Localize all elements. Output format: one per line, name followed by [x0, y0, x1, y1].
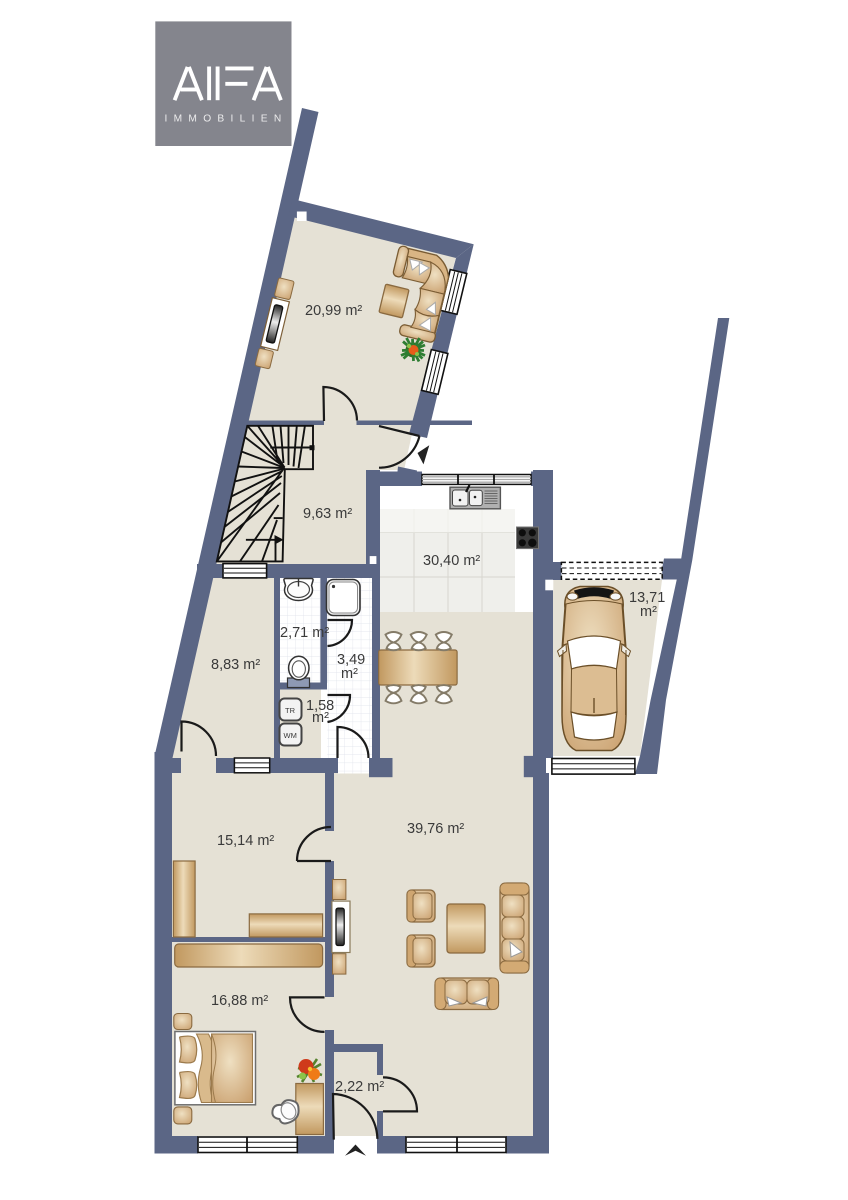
svg-text:TR: TR	[285, 706, 296, 715]
svg-text:2,22 m²: 2,22 m²	[335, 1079, 384, 1095]
svg-text:WM: WM	[284, 731, 297, 740]
svg-text:16,88 m²: 16,88 m²	[211, 993, 268, 1009]
svg-text:8,83 m²: 8,83 m²	[211, 657, 260, 673]
svg-text:30,40 m²: 30,40 m²	[423, 553, 480, 569]
svg-text:IMMOBILIEN: IMMOBILIEN	[165, 114, 288, 125]
svg-text:15,14 m²: 15,14 m²	[217, 833, 274, 849]
svg-text:m²: m²	[312, 710, 329, 726]
svg-text:m²: m²	[341, 666, 358, 682]
svg-text:2,71 m²: 2,71 m²	[280, 625, 329, 641]
svg-text:20,99 m²: 20,99 m²	[305, 303, 362, 319]
svg-text:m²: m²	[640, 604, 657, 620]
svg-text:39,76 m²: 39,76 m²	[407, 821, 464, 837]
svg-text:9,63 m²: 9,63 m²	[303, 506, 352, 522]
